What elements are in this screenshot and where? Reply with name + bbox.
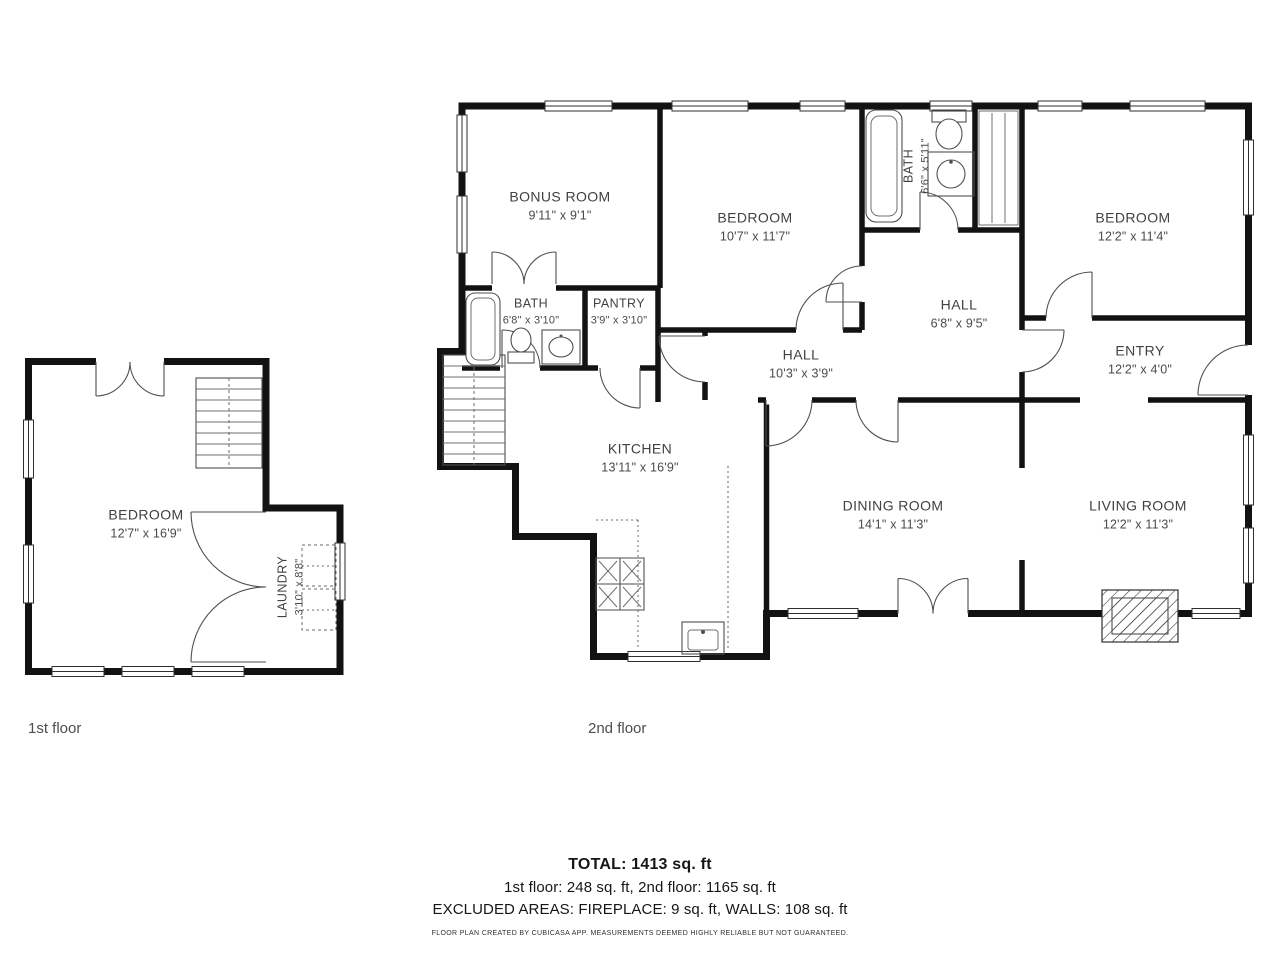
room-label-hall-upper: HALL 6'8" x 9'5": [931, 295, 988, 332]
room-name: KITCHEN: [601, 439, 678, 459]
room-name: DINING ROOM: [843, 496, 944, 516]
room-name: BEDROOM: [108, 505, 183, 525]
room-name: PANTRY: [591, 296, 648, 314]
sink-icon: [542, 330, 580, 364]
sink-icon: [928, 152, 974, 196]
stairs-icon: [196, 378, 262, 468]
room-name: BATH: [503, 296, 560, 314]
room-dims: 10'3" x 3'9": [769, 365, 833, 383]
stairs-icon: [443, 355, 505, 465]
room-name: HALL: [931, 295, 988, 315]
total-area: TOTAL: 1413 sq. ft: [0, 856, 1280, 874]
room-label-pantry: PANTRY 3'9" x 3'10": [591, 296, 648, 329]
room-dims: 12'2" x 4'0": [1108, 361, 1172, 379]
room-label-bedroom-1st: BEDROOM 12'7" x 16'9": [108, 505, 183, 542]
room-name: BATH: [901, 138, 919, 194]
room-dims: 3'9" x 3'10": [591, 313, 648, 328]
room-name: BONUS ROOM: [509, 187, 610, 207]
double-doors-icon: [191, 512, 272, 662]
room-name: ENTRY: [1108, 341, 1172, 361]
room-dims: 9'11" x 9'1": [509, 207, 610, 225]
room-dims: 14'1" x 11'3": [843, 516, 944, 534]
fireplace-icon: [1102, 590, 1178, 642]
room-dims: 3'10" x 8'8": [292, 556, 307, 618]
room-name: BEDROOM: [717, 208, 792, 228]
room-label-bedroom-right: BEDROOM 12'2" x 11'4": [1095, 208, 1170, 245]
room-name: LAUNDRY: [275, 556, 293, 618]
room-dims: 12'2" x 11'3": [1089, 516, 1187, 534]
first-floor-outer-walls: [29, 362, 341, 672]
room-label-hall-lower: HALL 10'3" x 3'9": [769, 345, 833, 382]
toilet-icon: [932, 110, 966, 149]
toilet-icon: [508, 328, 534, 363]
room-label-bath-small: BATH 6'8" x 3'10": [503, 296, 560, 329]
room-label-bedroom-middle: BEDROOM 10'7" x 11'7": [717, 208, 792, 245]
first-floor-plan: [24, 356, 346, 677]
room-name: LIVING ROOM: [1089, 496, 1187, 516]
bathtub-icon: [866, 110, 902, 222]
french-doors-icon: [96, 356, 164, 396]
room-label-living-room: LIVING ROOM 12'2" x 11'3": [1089, 496, 1187, 533]
first-floor-windows: [24, 420, 346, 677]
disclaimer: FLOOR PLAN CREATED BY CUBICASA APP. MEAS…: [0, 930, 1280, 937]
second-floor-windows: [457, 101, 1254, 662]
room-dims: 6'8" x 9'5": [931, 315, 988, 333]
bathtub-icon: [466, 293, 500, 365]
room-name: BEDROOM: [1095, 208, 1170, 228]
room-label-kitchen: KITCHEN 13'11" x 16'9": [601, 439, 678, 476]
room-dims: 6'8" x 3'10": [503, 313, 560, 328]
kitchen-sink-icon: [682, 622, 724, 654]
room-label-laundry: LAUNDRY 3'10" x 8'8": [275, 556, 308, 618]
room-label-bonus-room: BONUS ROOM 9'11" x 9'1": [509, 187, 610, 224]
excluded-areas: EXCLUDED AREAS: FIREPLACE: 9 sq. ft, WAL…: [0, 901, 1280, 918]
room-dims: 13'11" x 16'9": [601, 459, 678, 477]
floorplan-drawing: [0, 0, 1280, 960]
floor-areas: 1st floor: 248 sq. ft, 2nd floor: 1165 s…: [0, 879, 1280, 896]
room-dims: 6'6" x 5'11": [918, 138, 933, 194]
room-name: HALL: [769, 345, 833, 365]
room-label-bath-top: BATH 6'6" x 5'11": [901, 138, 934, 194]
room-dims: 12'2" x 11'4": [1095, 228, 1170, 246]
second-floor-door-gaps: [492, 226, 1254, 619]
area-summary: TOTAL: 1413 sq. ft 1st floor: 248 sq. ft…: [0, 856, 1280, 937]
stove-icon: [596, 558, 644, 610]
room-label-dining-room: DINING ROOM 14'1" x 11'3": [843, 496, 944, 533]
caption-2nd-floor: 2nd floor: [588, 720, 646, 737]
caption-1st-floor: 1st floor: [28, 720, 81, 737]
floorplan-page: BEDROOM 12'7" x 16'9" LAUNDRY 3'10" x 8'…: [0, 0, 1280, 960]
room-label-entry: ENTRY 12'2" x 4'0": [1108, 341, 1172, 378]
room-dims: 10'7" x 11'7": [717, 228, 792, 246]
closet-shelves-icon: [979, 111, 1018, 225]
room-dims: 12'7" x 16'9": [108, 525, 183, 543]
second-floor-plan: [441, 101, 1254, 662]
